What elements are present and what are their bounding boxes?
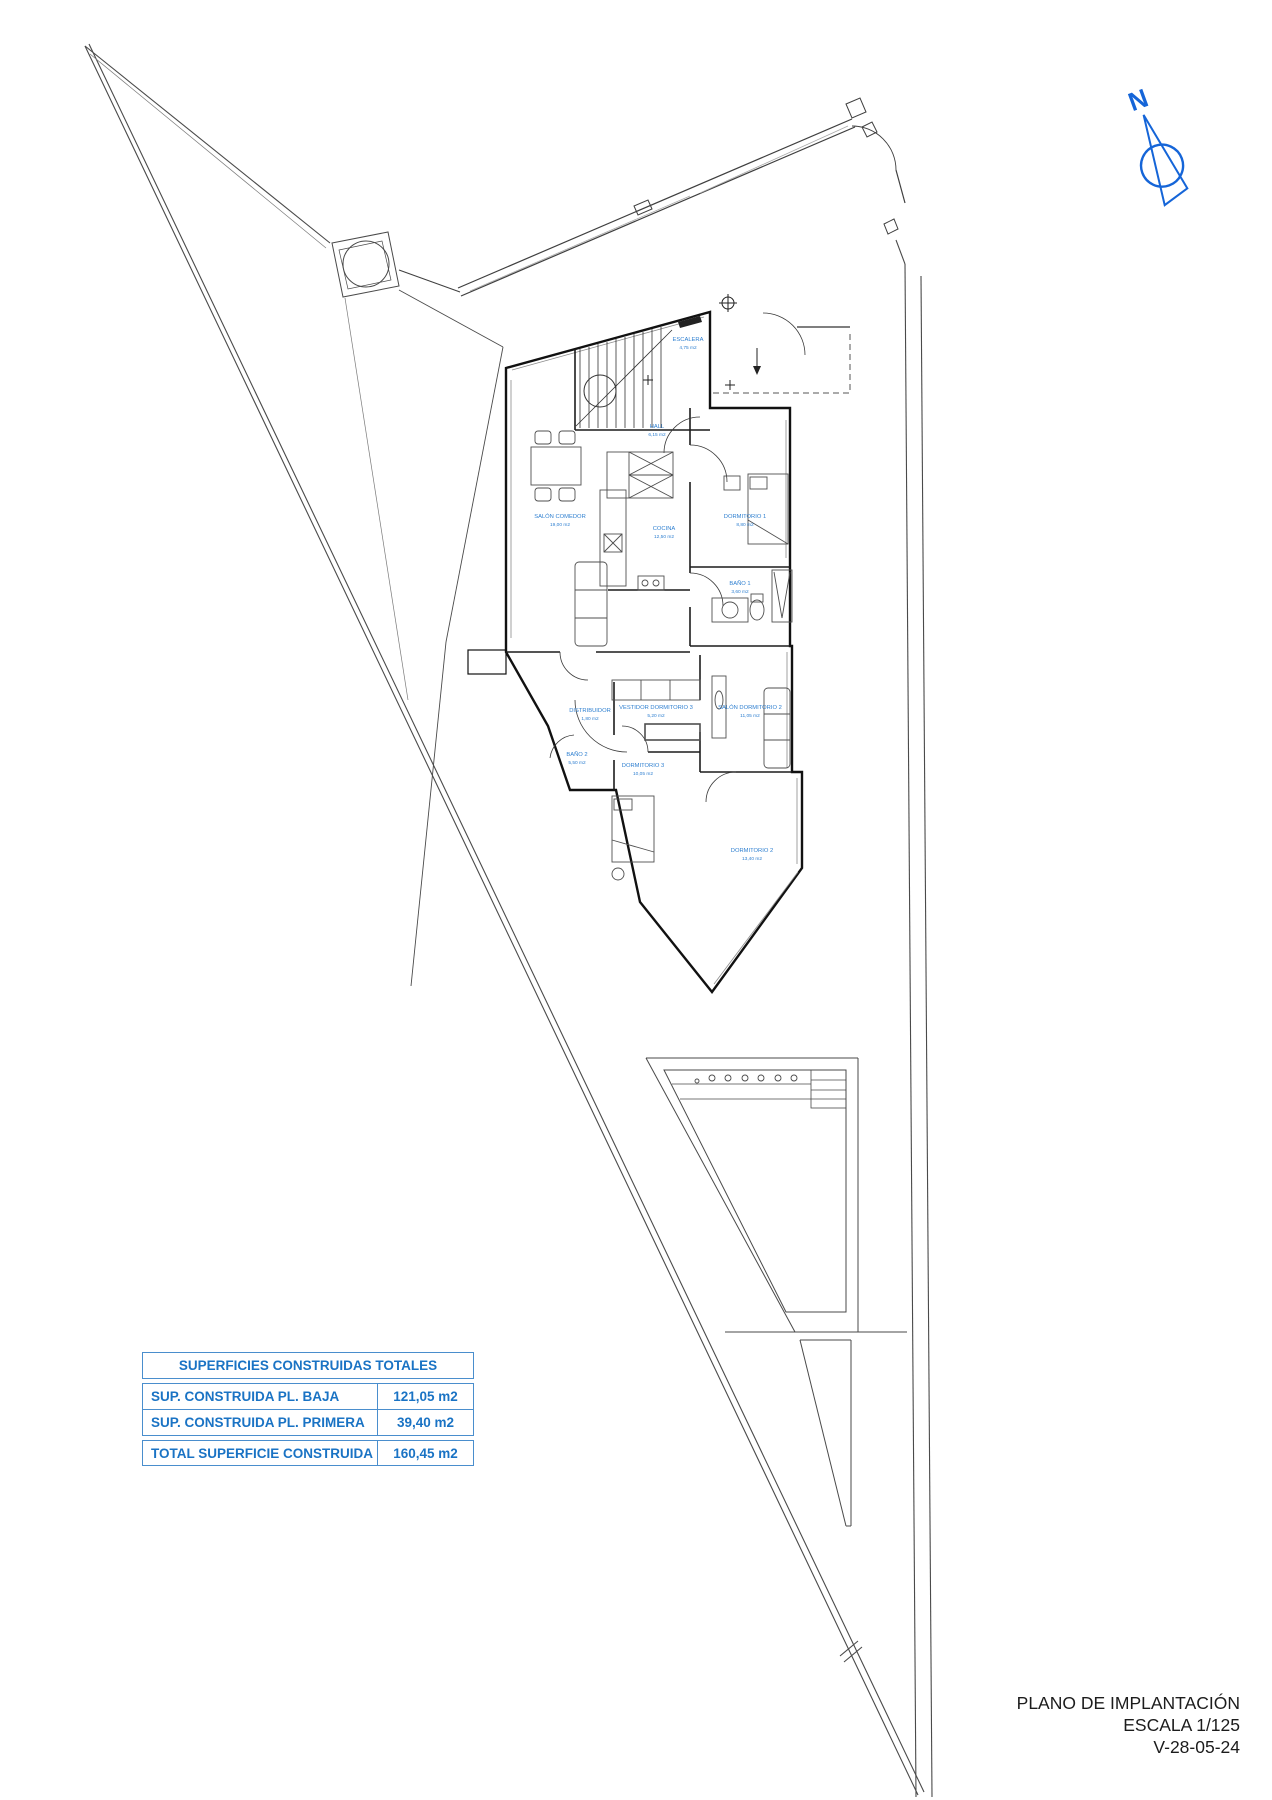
drawing-title: PLANO DE IMPLANTACIÓN <box>1017 1692 1240 1714</box>
room-area-hall: 6,15 m2 <box>648 432 666 438</box>
areas-table-total: TOTAL SUPERFICIE CONSTRUIDA 160,45 m2 <box>142 1440 474 1466</box>
utility-structure <box>332 232 399 297</box>
row-value: 39,40 m2 <box>377 1410 473 1435</box>
furniture <box>531 431 792 880</box>
access-path <box>896 240 932 1797</box>
room-area-dormitorio-2: 13,40 m2 <box>742 856 762 862</box>
areas-table-rows: SUP. CONSTRUIDA PL. BAJA 121,05 m2 SUP. … <box>142 1383 474 1436</box>
table-row: SUP. CONSTRUIDA PL. PRIMERA 39,40 m2 <box>143 1409 473 1435</box>
room-label-salon-comedor: SALÓN COMEDOR <box>534 513 586 520</box>
room-area-bano-1: 3,60 m2 <box>731 589 749 595</box>
drawing-version: V-28-05-24 <box>1017 1736 1240 1758</box>
room-label-distribuidor: DISTRIBUIDOR <box>569 708 611 714</box>
room-area-escalera: 4,75 m2 <box>679 345 697 351</box>
pool-jets <box>695 1075 797 1083</box>
north-label: N <box>1124 83 1152 118</box>
room-area-distribuidor: 1,80 m2 <box>581 716 599 722</box>
total-value: 160,45 m2 <box>377 1441 473 1465</box>
site-boundary <box>85 44 924 1795</box>
row-label: SUP. CONSTRUIDA PL. PRIMERA <box>143 1415 377 1430</box>
row-label: SUP. CONSTRUIDA PL. BAJA <box>143 1389 377 1404</box>
table-row: SUP. CONSTRUIDA PL. BAJA 121,05 m2 <box>143 1384 473 1409</box>
room-label-vestidor-dorm-3: VESTIDOR DORMITORIO 3 <box>619 705 693 711</box>
row-value: 121,05 m2 <box>377 1384 473 1409</box>
room-label-dormitorio-3: DORMITORIO 3 <box>622 763 664 769</box>
table-row: TOTAL SUPERFICIE CONSTRUIDA 160,45 m2 <box>143 1441 473 1465</box>
room-label-bano-1: BAÑO 1 <box>729 580 750 587</box>
room-label-dormitorio-2: DORMITORIO 2 <box>731 848 773 854</box>
areas-table-title: SUPERFICIES CONSTRUIDAS TOTALES <box>142 1352 474 1379</box>
drawing-scale: ESCALA 1/125 <box>1017 1714 1240 1736</box>
room-label-dormitorio-1: DORMITORIO 1 <box>724 514 766 520</box>
stairs <box>576 316 702 428</box>
room-area-salon-comedor: 19,00 m2 <box>550 522 570 528</box>
room-area-vestidor-dorm-3: 5,20 m2 <box>647 713 665 719</box>
upper-floor-outline <box>713 327 850 393</box>
room-area-bano-2: 5,50 m2 <box>568 760 586 766</box>
title-block: PLANO DE IMPLANTACIÓN ESCALA 1/125 V-28-… <box>1017 1692 1240 1758</box>
room-area-dormitorio-3: 10,05 m2 <box>633 771 653 777</box>
room-area-salon-dorm-2: 11,05 m2 <box>740 713 760 719</box>
room-area-cocina: 12,50 m2 <box>654 534 674 540</box>
room-label-bano-2: BAÑO 2 <box>566 751 587 758</box>
window-glazing <box>511 317 798 984</box>
site-plan-drawing: ESCALERA 4,75 m2 HALL 6,15 m2 SALÓN COME… <box>0 0 1272 1800</box>
room-label-hall: HALL <box>650 424 665 430</box>
door-swings <box>550 313 805 802</box>
total-label: TOTAL SUPERFICIE CONSTRUIDA <box>143 1446 377 1461</box>
areas-summary-table: SUPERFICIES CONSTRUIDAS TOTALES SUP. CON… <box>142 1352 474 1466</box>
room-labels: ESCALERA 4,75 m2 HALL 6,15 m2 SALÓN COME… <box>534 337 782 862</box>
room-label-cocina: COCINA <box>653 526 676 532</box>
room-label-escalera: ESCALERA <box>673 337 704 343</box>
perimeter-wall-strip <box>399 98 905 296</box>
room-label-salon-dorm-2: SALÓN DORMITORIO 2 <box>718 704 782 711</box>
room-area-dormitorio-1: 8,80 m2 <box>736 522 754 528</box>
plan-sheet: ESCALERA 4,75 m2 HALL 6,15 m2 SALÓN COME… <box>0 0 1272 1800</box>
north-compass-icon: N <box>1113 79 1195 209</box>
